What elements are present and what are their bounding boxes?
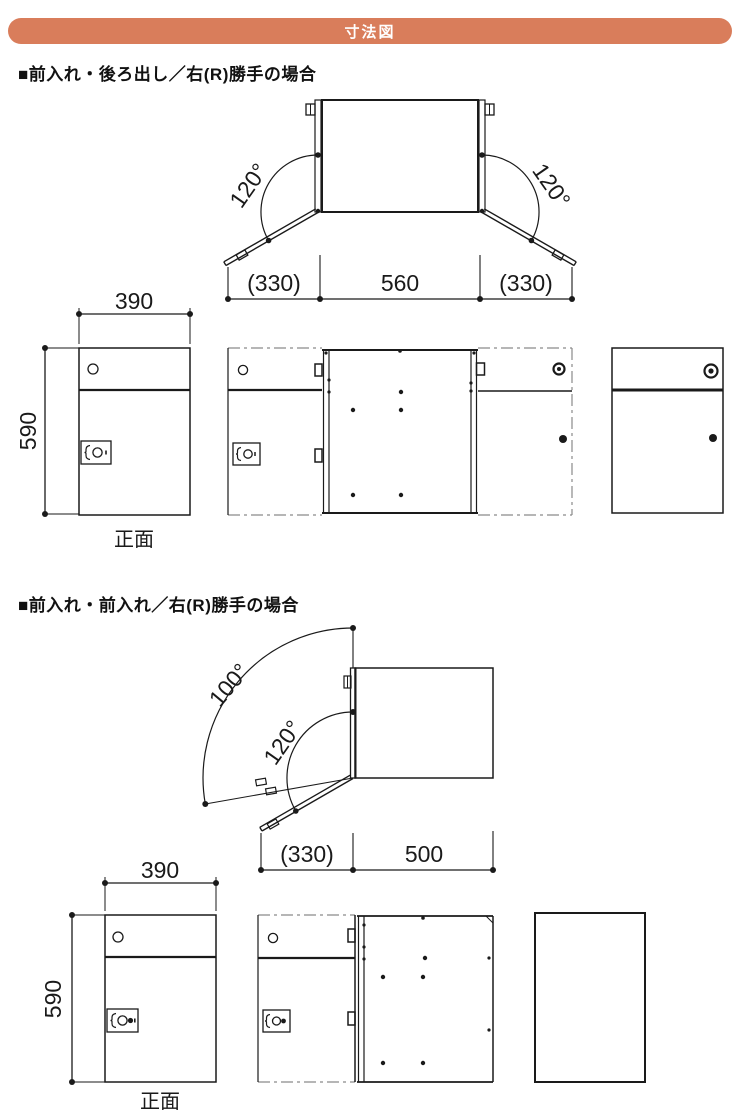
s2-box-interior (357, 916, 493, 1082)
s2-plan-box (355, 668, 493, 778)
s1-knob-dot (559, 435, 567, 443)
s1-box-interior (322, 349, 485, 513)
s1-front-height-dim: 590 (15, 412, 41, 450)
s1-back-knob-dot (709, 434, 717, 442)
s2-left-door-lock-icon (263, 1010, 290, 1032)
s1-hinge-tab-icon (315, 449, 322, 462)
s2-front-lock-icon (107, 1009, 138, 1032)
s1-back-lock-icon (708, 368, 713, 373)
s1-hinge-tab-icon (315, 364, 322, 376)
s2-front-label: 正面 (140, 1091, 180, 1111)
s1-plan-box (322, 100, 478, 212)
s2-hinge-tab-icon (348, 929, 355, 942)
s1-hinge-tab-icon (477, 363, 485, 375)
s2-hinge-tab-icon (348, 1012, 355, 1025)
s2-front-width-dim: 390 (141, 857, 179, 883)
s1-door-latch-left-icon (236, 250, 248, 260)
s2-open-left-door (258, 915, 355, 1082)
s1-back-view (612, 348, 723, 513)
s1-open-door-left (224, 209, 318, 266)
s1-front-row: 390 590 正面 (15, 288, 723, 551)
s2-door-latch-icon (266, 787, 277, 795)
s1-front-view: 390 590 正面 (15, 288, 193, 551)
s1-dim-center: 560 (381, 270, 419, 296)
s1-left-door-hole-icon (238, 365, 247, 374)
s1-open-left-door (228, 348, 322, 515)
s2-angle-label-inner: 120° (258, 715, 307, 769)
s2-front-height-dim: 590 (40, 980, 66, 1018)
s1-hinge-right-icon (485, 104, 494, 115)
s1-dim-left: (330) (247, 270, 301, 296)
s1-hinge-left-icon (306, 104, 315, 115)
s1-front-lock-icon (81, 441, 111, 464)
s1-swing-arc-right (482, 155, 539, 241)
s2-back-view (535, 913, 645, 1082)
s2-dim-right: 500 (405, 841, 443, 867)
s2-plan-dimension: (330) 500 (258, 831, 496, 873)
s2-left-door-hole-icon (268, 933, 277, 942)
s1-keyhole-icon (557, 367, 561, 371)
s1-open-door-right (482, 209, 576, 266)
dimension-drawing-page: 寸法図 ■前入れ・後ろ出し／右(R)勝手の場合 ■前入れ・前入れ／右(R)勝手の… (0, 0, 740, 1111)
technical-drawing: 120° 120° (330) 560 (330) (0, 0, 740, 1111)
s2-open-front-view (258, 915, 493, 1082)
s1-angle-label-left: 120° (224, 158, 273, 212)
s2-plan-view: 100° 120° (330) 500 (202, 625, 496, 873)
s2-angle-label-outer: 100° (204, 658, 254, 711)
s1-dim-right: (330) (499, 270, 553, 296)
s1-plan-view: 120° 120° (330) 560 (330) (224, 100, 576, 302)
s1-front-width-dim: 390 (115, 288, 153, 314)
s1-door-latch-right-icon (552, 250, 564, 260)
s1-swing-arc-left (261, 155, 318, 241)
s1-angle-label-right: 120° (527, 158, 576, 212)
s2-dim-left: (330) (280, 841, 334, 867)
s1-front-label: 正面 (114, 529, 154, 551)
s2-front-view: 390 590 正面 (40, 857, 219, 1111)
s2-open-door-120 (260, 775, 353, 831)
s1-plan-dimension: (330) 560 (330) (225, 255, 575, 302)
s2-front-hole-icon (113, 932, 123, 942)
s2-front-row: 390 590 正面 (40, 857, 645, 1111)
s1-left-door-lock-icon (233, 443, 260, 465)
s1-open-right-door (478, 348, 572, 515)
s2-door-latch-icon (256, 778, 267, 786)
s1-front-hole-icon (88, 364, 98, 374)
s1-open-front-view (228, 348, 572, 515)
